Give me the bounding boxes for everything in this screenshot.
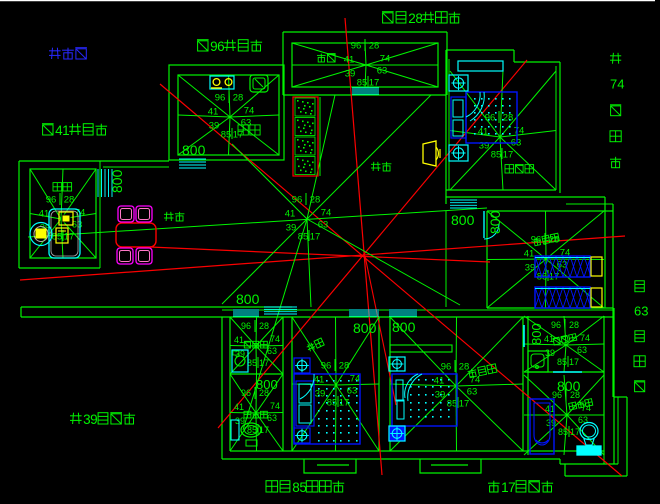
svg-text:39: 39 <box>545 348 555 358</box>
svg-text:63: 63 <box>377 65 388 76</box>
svg-text:63: 63 <box>577 345 587 355</box>
svg-text:63: 63 <box>578 415 588 425</box>
svg-text:6: 6 <box>217 39 225 54</box>
svg-text:41: 41 <box>434 375 445 386</box>
svg-text:17: 17 <box>64 231 75 242</box>
svg-text:85: 85 <box>327 397 338 408</box>
svg-text:74: 74 <box>610 77 624 92</box>
svg-text:63: 63 <box>634 304 648 319</box>
svg-text:96: 96 <box>551 320 561 330</box>
svg-text:28: 28 <box>339 360 350 371</box>
svg-text:63: 63 <box>318 219 329 230</box>
svg-text:5: 5 <box>299 480 307 495</box>
svg-text:96: 96 <box>321 360 332 371</box>
svg-text:85: 85 <box>357 77 368 88</box>
svg-text:85: 85 <box>52 231 63 242</box>
svg-text:17: 17 <box>259 358 269 368</box>
svg-text:74: 74 <box>270 334 280 344</box>
svg-text:800: 800 <box>353 320 377 336</box>
svg-text:41: 41 <box>285 208 296 219</box>
svg-text:96: 96 <box>215 92 226 103</box>
svg-text:74: 74 <box>350 373 361 384</box>
svg-text:39: 39 <box>525 262 536 273</box>
svg-text:28: 28 <box>369 40 380 51</box>
svg-text:74: 74 <box>244 105 255 116</box>
svg-text:74: 74 <box>380 53 391 64</box>
svg-text:7: 7 <box>508 480 516 495</box>
svg-text:85: 85 <box>491 149 502 160</box>
svg-text:85: 85 <box>558 427 568 437</box>
svg-text:74: 74 <box>270 401 280 411</box>
svg-text:17: 17 <box>569 357 579 367</box>
svg-text:39: 39 <box>479 140 490 151</box>
svg-text:41: 41 <box>314 374 325 385</box>
svg-text:63: 63 <box>267 413 277 423</box>
svg-text:41: 41 <box>524 248 535 259</box>
svg-text:96: 96 <box>241 388 251 398</box>
svg-text:41: 41 <box>39 208 50 219</box>
svg-text:39: 39 <box>286 222 297 233</box>
svg-text:41: 41 <box>344 54 355 65</box>
svg-text:1: 1 <box>62 123 70 138</box>
svg-text:41: 41 <box>234 402 244 412</box>
svg-text:41: 41 <box>478 126 489 137</box>
svg-text:63: 63 <box>347 385 358 396</box>
svg-text:28: 28 <box>233 92 244 103</box>
svg-text:800: 800 <box>557 378 581 394</box>
svg-text:85: 85 <box>298 231 309 242</box>
svg-text:85: 85 <box>447 398 458 409</box>
svg-text:74: 74 <box>470 374 481 385</box>
svg-text:9: 9 <box>90 412 98 427</box>
svg-text:96: 96 <box>292 194 303 205</box>
svg-text:28: 28 <box>503 112 514 123</box>
svg-text:800: 800 <box>256 377 278 392</box>
svg-text:17: 17 <box>310 231 321 242</box>
svg-text:28: 28 <box>64 194 75 205</box>
svg-text:41: 41 <box>234 335 244 345</box>
svg-text:63: 63 <box>467 386 478 397</box>
svg-text:96: 96 <box>441 361 452 372</box>
svg-text:800: 800 <box>182 142 206 158</box>
svg-text:800: 800 <box>109 169 125 193</box>
svg-text:28: 28 <box>310 194 321 205</box>
svg-text:8: 8 <box>415 11 423 26</box>
svg-text:17: 17 <box>570 427 580 437</box>
svg-text:28: 28 <box>569 320 579 330</box>
svg-text:17: 17 <box>503 149 514 160</box>
svg-text:28: 28 <box>459 361 470 372</box>
svg-text:96: 96 <box>241 321 251 331</box>
svg-text:28: 28 <box>259 321 269 331</box>
svg-text:800: 800 <box>529 323 544 345</box>
svg-text:74: 74 <box>580 333 590 343</box>
svg-text:74: 74 <box>514 125 525 136</box>
svg-text:39: 39 <box>315 388 326 399</box>
svg-text:96: 96 <box>46 194 57 205</box>
svg-text:800: 800 <box>392 319 416 335</box>
svg-text:85: 85 <box>557 357 567 367</box>
svg-text:17: 17 <box>459 398 470 409</box>
svg-text:96: 96 <box>485 112 496 123</box>
svg-text:41: 41 <box>208 106 219 117</box>
svg-text:800: 800 <box>236 291 260 307</box>
svg-text:74: 74 <box>321 207 332 218</box>
svg-text:17: 17 <box>369 77 380 88</box>
svg-text:800: 800 <box>487 210 503 234</box>
svg-text:63: 63 <box>267 346 277 356</box>
svg-text:96: 96 <box>351 40 362 51</box>
svg-text:41: 41 <box>544 334 554 344</box>
svg-text:85: 85 <box>221 129 232 140</box>
svg-text:800: 800 <box>451 212 475 228</box>
svg-text:39: 39 <box>209 120 220 131</box>
svg-text:39: 39 <box>345 68 356 79</box>
